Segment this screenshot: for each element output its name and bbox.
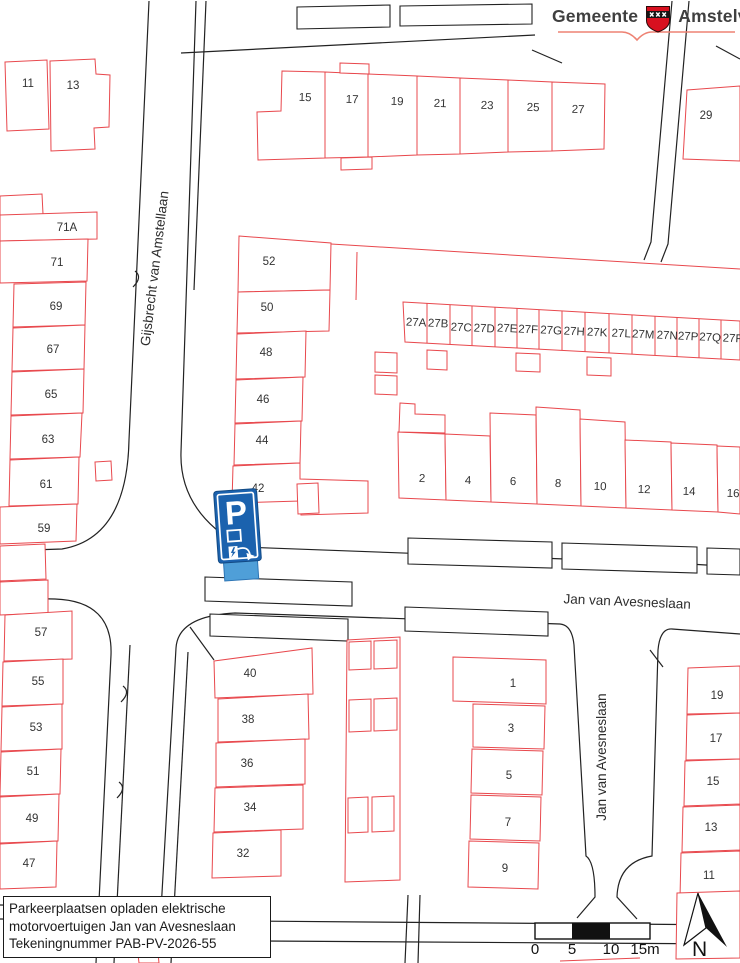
house-number-label: 27G: [540, 324, 562, 337]
house-number-label: 10: [594, 481, 607, 493]
house-number-label: 19: [391, 96, 404, 108]
house-number-label: 23: [481, 100, 494, 112]
house-number-label: 27A: [406, 316, 427, 329]
house-number-label: 25: [527, 102, 540, 114]
house-number-label: 44: [256, 435, 269, 447]
title-line-2: motorvoertuigen Jan van Avesneslaan: [9, 918, 265, 936]
house-number-label: 47: [23, 858, 36, 870]
house-number-label: 55: [32, 676, 45, 688]
house-number-label: 13: [705, 822, 718, 834]
scale-label-10: 10: [603, 941, 620, 958]
house-number-label: 27H: [563, 325, 585, 338]
street-name-label: Jan van Avesneslaan: [563, 591, 691, 612]
house-number-label: 27L: [611, 328, 631, 341]
street-name-label: Gijsbrecht van Amstellaan: [138, 190, 172, 347]
house-number-label: 4: [465, 475, 472, 487]
house-number-label: 71: [51, 257, 64, 269]
house-number-label: 27M: [632, 328, 655, 341]
house-number-label: 5: [506, 770, 512, 782]
scale-label-5: 5: [568, 941, 576, 958]
house-number-label: 11: [22, 78, 34, 90]
logo-word-left: Gemeente: [552, 5, 638, 27]
house-number-label: 1: [510, 678, 516, 690]
house-number-label: 32: [237, 848, 250, 860]
house-number-label: 63: [42, 434, 55, 446]
house-number-label: 27E: [497, 322, 518, 335]
house-number-label: 11: [703, 870, 715, 882]
house-number-label: 9: [502, 863, 508, 875]
house-number-label: 27C: [450, 321, 472, 334]
house-number-label: 49: [26, 813, 39, 825]
house-number-label: 12: [638, 484, 651, 496]
house-number-label: 40: [244, 668, 257, 680]
house-number-label: 27K: [587, 326, 608, 339]
house-number-label: 69: [50, 301, 63, 313]
house-number-label: 29: [700, 110, 713, 122]
house-number-label: 27P: [678, 330, 699, 343]
house-number-label: 36: [241, 758, 254, 770]
street-name-label: Jan van Avesneslaan: [594, 693, 609, 820]
north-label: N: [692, 938, 707, 962]
house-number-label: 65: [45, 389, 58, 401]
house-number-label: 21: [434, 98, 447, 110]
house-number-label: 53: [30, 722, 43, 734]
map-canvas: 1113151719212325272971A71696765636159575…: [0, 0, 740, 963]
house-number-label: 67: [47, 344, 60, 356]
title-line-3: Tekeningnummer PAB-PV-2026-55: [9, 935, 265, 953]
house-number-label: 27: [572, 104, 585, 116]
house-number-label: 17: [710, 733, 723, 745]
house-number-label: 27B: [428, 317, 449, 330]
house-number-label: 27D: [473, 322, 495, 335]
house-number-label: 15: [299, 92, 312, 104]
house-number-label: 61: [40, 479, 53, 491]
parking-p-glyph: P: [224, 493, 249, 531]
map-page: 1113151719212325272971A71696765636159575…: [0, 0, 740, 963]
house-number-label: 38: [242, 714, 255, 726]
house-number-label: 16: [727, 488, 740, 500]
amstelveen-crest-icon: [645, 5, 671, 34]
house-number-label: 13: [67, 80, 80, 92]
municipality-logo: Gemeente Amstelveen: [552, 5, 740, 34]
scale-label-0: 0: [531, 941, 539, 958]
title-block: Parkeerplaatsen opladen elektrische moto…: [3, 896, 271, 958]
house-number-label: 50: [261, 302, 274, 314]
house-number-label: 17: [346, 94, 359, 106]
house-number-label: 7: [505, 817, 511, 829]
house-number-label: 2: [419, 473, 426, 485]
house-number-label: 27R: [722, 332, 740, 345]
house-number-label: 6: [510, 476, 517, 488]
house-number-label: 27N: [656, 329, 678, 342]
house-number-label: 46: [257, 394, 270, 406]
house-number-label: 14: [683, 486, 697, 498]
house-number-label: 3: [508, 723, 514, 735]
house-number-label: 34: [244, 802, 257, 814]
title-line-1: Parkeerplaatsen opladen elektrische: [9, 900, 265, 918]
scale-label-15m: 15m: [630, 941, 659, 958]
house-number-label: 57: [35, 627, 48, 639]
house-number-label: 59: [38, 523, 51, 535]
buildings-layer: [0, 59, 740, 963]
house-number-label: 27Q: [699, 331, 721, 344]
house-number-label: 71A: [57, 222, 78, 234]
ev-parking-sign: P: [214, 489, 263, 582]
house-number-label: 48: [260, 347, 273, 359]
logo-word-right: Amstelveen: [678, 5, 740, 27]
scale-bar: [535, 923, 650, 939]
house-number-label: 52: [263, 256, 276, 268]
house-number-label: 19: [711, 690, 724, 702]
house-number-label: 51: [27, 766, 40, 778]
house-number-label: 27F: [518, 323, 538, 336]
house-number-label: 8: [555, 478, 562, 490]
house-number-label: 15: [707, 776, 720, 788]
